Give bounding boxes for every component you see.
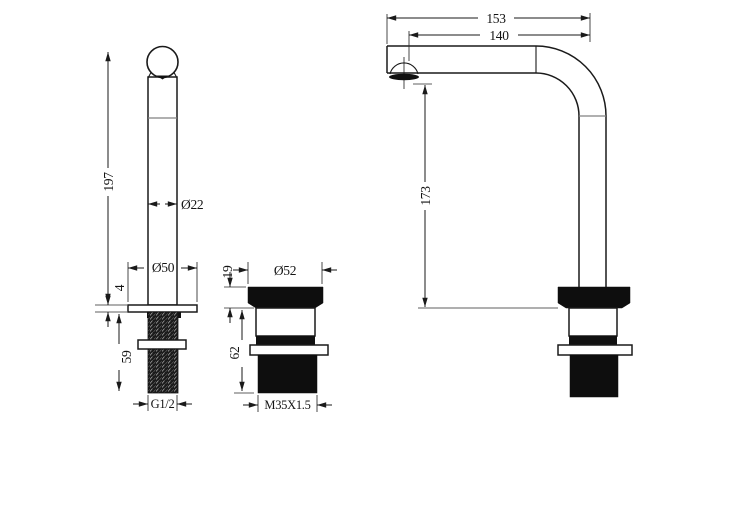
dim-spout-height-label: 173 [418, 186, 433, 206]
spout-inner-profile [387, 73, 579, 287]
dim-spout-height: 173 [413, 84, 558, 308]
dim-spout-length-overall-label: 153 [486, 11, 506, 26]
cad-drawing: 197 Ø22 Ø50 4 59 [0, 0, 734, 527]
dim-cartridge-cap-diameter: Ø52 [233, 262, 337, 284]
spout-view: 153 140 173 [387, 11, 632, 397]
dim-cartridge-cap-height-label: 19 [220, 265, 235, 278]
spout-outer-profile [387, 46, 606, 287]
dim-handle-thread-label: G1/2 [151, 397, 175, 411]
dim-spout-length-to-aerator-label: 140 [489, 28, 509, 43]
dim-handle-height: 197 [101, 52, 116, 303]
dim-shank-length-label: 59 [119, 350, 134, 363]
dim-cartridge-thread-label: M35X1.5 [264, 398, 310, 412]
spout-base-threaded-body [570, 355, 618, 397]
cartridge-view: Ø52 19 62 M35X1.5 [220, 262, 337, 412]
handle-view: 197 Ø22 Ø50 4 59 [95, 47, 203, 412]
dim-cartridge-body-height-label: 62 [227, 347, 242, 360]
dim-handle-thread: G1/2 [133, 395, 192, 411]
dim-handle-tube-diameter-label: Ø22 [181, 197, 203, 212]
drawing-page: 197 Ø22 Ø50 4 59 [0, 0, 734, 527]
dim-base-thickness: 4 [95, 284, 127, 327]
cartridge-cap [248, 287, 323, 308]
cartridge-thread-top [256, 336, 315, 345]
dim-base-thickness-label: 4 [112, 284, 127, 291]
handle-locknut [138, 340, 186, 349]
handle-knob [147, 47, 178, 78]
cartridge-threaded-body [258, 355, 317, 393]
dim-handle-base-diameter-label: Ø50 [152, 260, 175, 275]
spout-base-nut [558, 345, 632, 355]
dim-cartridge-thread: M35X1.5 [243, 395, 332, 412]
dim-handle-height-label: 197 [101, 172, 116, 192]
dim-shank-length: 59 [119, 314, 134, 391]
cartridge-body [256, 308, 315, 336]
handle-threaded-shank [148, 312, 178, 393]
aerator-outlet [389, 74, 419, 80]
spout-base-thread-top [569, 336, 617, 345]
dim-cartridge-cap-diameter-label: Ø52 [274, 263, 296, 278]
dim-spout-length-to-aerator: 140 [409, 28, 590, 61]
handle-base-flange [128, 305, 197, 312]
spout-base-body [569, 308, 617, 336]
spout-base-cap [558, 287, 630, 308]
cartridge-nut [250, 345, 328, 355]
